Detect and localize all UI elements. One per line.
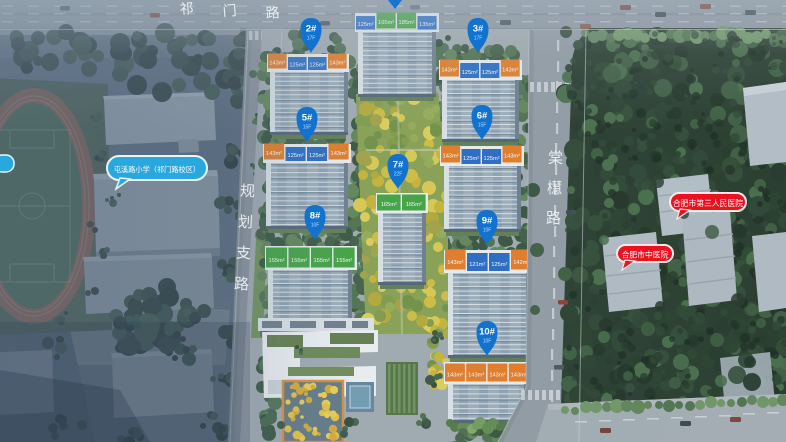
svg-text:祁: 祁 (179, 0, 194, 17)
svg-text:9#: 9# (482, 216, 493, 227)
svg-text:棠: 棠 (548, 150, 563, 167)
svg-text:17F: 17F (474, 36, 483, 42)
svg-text:8#: 8# (310, 211, 321, 222)
svg-text:支: 支 (235, 245, 251, 263)
svg-text:路: 路 (233, 276, 249, 294)
svg-text:3#: 3# (473, 24, 484, 35)
svg-text:17F: 17F (307, 36, 316, 42)
svg-text:22F: 22F (394, 172, 403, 178)
svg-text:屯溪路小学（祁门路校区）: 屯溪路小学（祁门路校区） (114, 165, 200, 174)
svg-text:路: 路 (265, 4, 280, 21)
svg-text:划: 划 (237, 214, 253, 232)
svg-text:规: 规 (239, 183, 255, 201)
svg-text:10F: 10F (483, 339, 492, 345)
svg-text:10#: 10# (479, 327, 496, 338)
svg-text:6#: 6# (477, 111, 488, 122)
svg-text:10F: 10F (311, 223, 320, 229)
svg-text:5#: 5# (302, 113, 313, 124)
svg-text:15F: 15F (478, 123, 487, 129)
svg-text:合肥市第三人民医院: 合肥市第三人民医院 (673, 198, 743, 208)
svg-text:櫘: 櫘 (547, 180, 562, 197)
svg-text:门: 门 (222, 2, 237, 19)
svg-text:10F: 10F (483, 228, 492, 234)
svg-text:15F: 15F (303, 125, 312, 131)
svg-text:路: 路 (546, 210, 561, 227)
svg-text:7#: 7# (393, 160, 404, 171)
svg-text:2#: 2# (306, 24, 317, 35)
svg-text:合肥市中医院: 合肥市中医院 (622, 250, 669, 260)
